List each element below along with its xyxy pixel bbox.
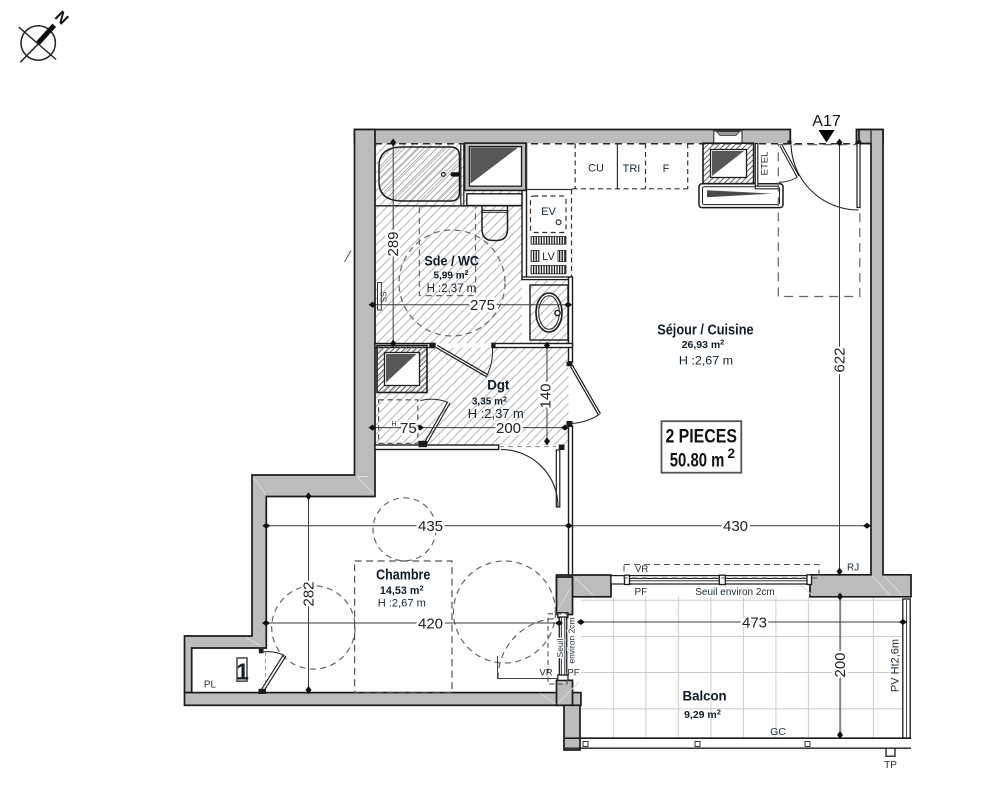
svg-text:PV Ht2,6m: PV Ht2,6m <box>890 639 902 692</box>
svg-text:H :2,67 m: H :2,67 m <box>679 354 733 368</box>
svg-text:H :2,37 m: H :2,37 m <box>468 407 524 421</box>
svg-text:9,29 m2: 9,29 m2 <box>684 708 721 722</box>
svg-text:26,93 m2: 26,93 m2 <box>682 338 725 352</box>
svg-text:H: H <box>392 421 397 428</box>
svg-text:PF: PF <box>567 668 579 679</box>
svg-text:2: 2 <box>728 446 736 461</box>
svg-text:ETEL: ETEL <box>760 152 771 176</box>
svg-text:289: 289 <box>385 231 402 256</box>
svg-text:Balcon: Balcon <box>683 689 727 704</box>
svg-text:282: 282 <box>301 581 318 606</box>
svg-text:environ 2cm: environ 2cm <box>567 617 577 663</box>
svg-text:Séjour / Cuisine: Séjour / Cuisine <box>657 322 753 338</box>
svg-text:Sde / WC: Sde / WC <box>424 253 479 268</box>
svg-text:75: 75 <box>400 420 417 437</box>
svg-text:H :2,37 m: H :2,37 m <box>427 283 477 295</box>
svg-text:H :2,67 m: H :2,67 m <box>378 597 426 609</box>
svg-text:420: 420 <box>418 616 443 633</box>
svg-text:430: 430 <box>723 518 748 535</box>
svg-text:5,99 m2: 5,99 m2 <box>433 270 468 281</box>
svg-text:200: 200 <box>496 420 521 437</box>
svg-text:TRI: TRI <box>623 163 641 175</box>
svg-text:A17: A17 <box>812 113 841 130</box>
svg-text:50.80 m: 50.80 m <box>670 450 725 472</box>
svg-text:200: 200 <box>832 652 849 677</box>
svg-text:1: 1 <box>236 659 249 685</box>
svg-text:14,53 m2: 14,53 m2 <box>380 584 424 598</box>
svg-text:3,35 m2: 3,35 m2 <box>472 396 507 407</box>
svg-text:RJ: RJ <box>847 563 859 574</box>
svg-text:622: 622 <box>832 347 849 372</box>
svg-text:275: 275 <box>470 297 495 314</box>
svg-text:140: 140 <box>538 383 555 408</box>
svg-text:EV: EV <box>541 206 556 218</box>
svg-text:PF: PF <box>635 587 648 598</box>
svg-text:435: 435 <box>418 518 443 535</box>
svg-text:Dgt: Dgt <box>487 377 509 393</box>
svg-text:GC: GC <box>770 726 786 738</box>
svg-text:TP: TP <box>884 760 897 771</box>
svg-text:2 PIECES: 2 PIECES <box>665 427 737 448</box>
svg-text:SS: SS <box>380 292 389 303</box>
svg-text:CU: CU <box>588 163 604 175</box>
svg-text:LV: LV <box>542 251 555 263</box>
svg-text:Chambre: Chambre <box>376 566 430 583</box>
svg-text:Seuil environ 2cm: Seuil environ 2cm <box>695 587 774 598</box>
svg-text:473: 473 <box>742 615 767 632</box>
svg-text:Seuil: Seuil <box>555 638 565 657</box>
svg-text:F: F <box>663 163 670 175</box>
svg-text:VR: VR <box>539 668 552 679</box>
svg-text:PL: PL <box>204 680 217 691</box>
svg-text:VR: VR <box>635 564 648 575</box>
